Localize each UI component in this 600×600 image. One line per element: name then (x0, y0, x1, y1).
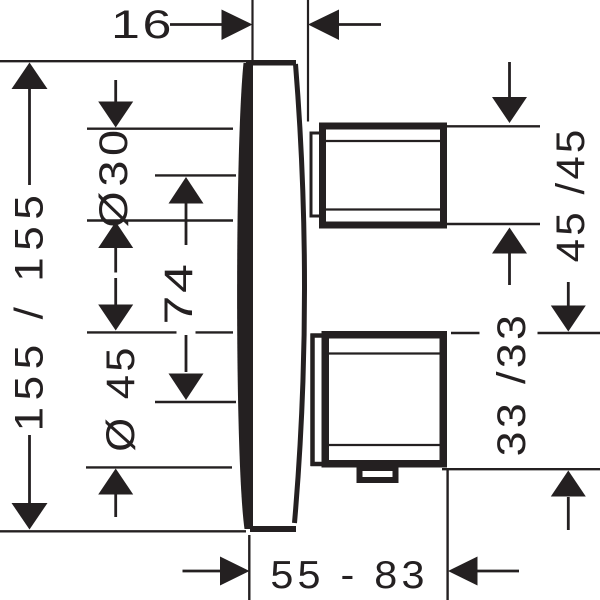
svg-text:55 - 83: 55 - 83 (270, 553, 428, 597)
svg-text:33 /33: 33 /33 (489, 312, 533, 457)
svg-text:Ø 45: Ø 45 (98, 344, 143, 452)
svg-text:74: 74 (156, 261, 201, 324)
svg-text:155 / 155: 155 / 155 (6, 189, 51, 432)
svg-text:Ø30: Ø30 (92, 125, 136, 227)
svg-text:45 /45: 45 /45 (548, 127, 593, 263)
svg-text:16: 16 (111, 2, 174, 47)
